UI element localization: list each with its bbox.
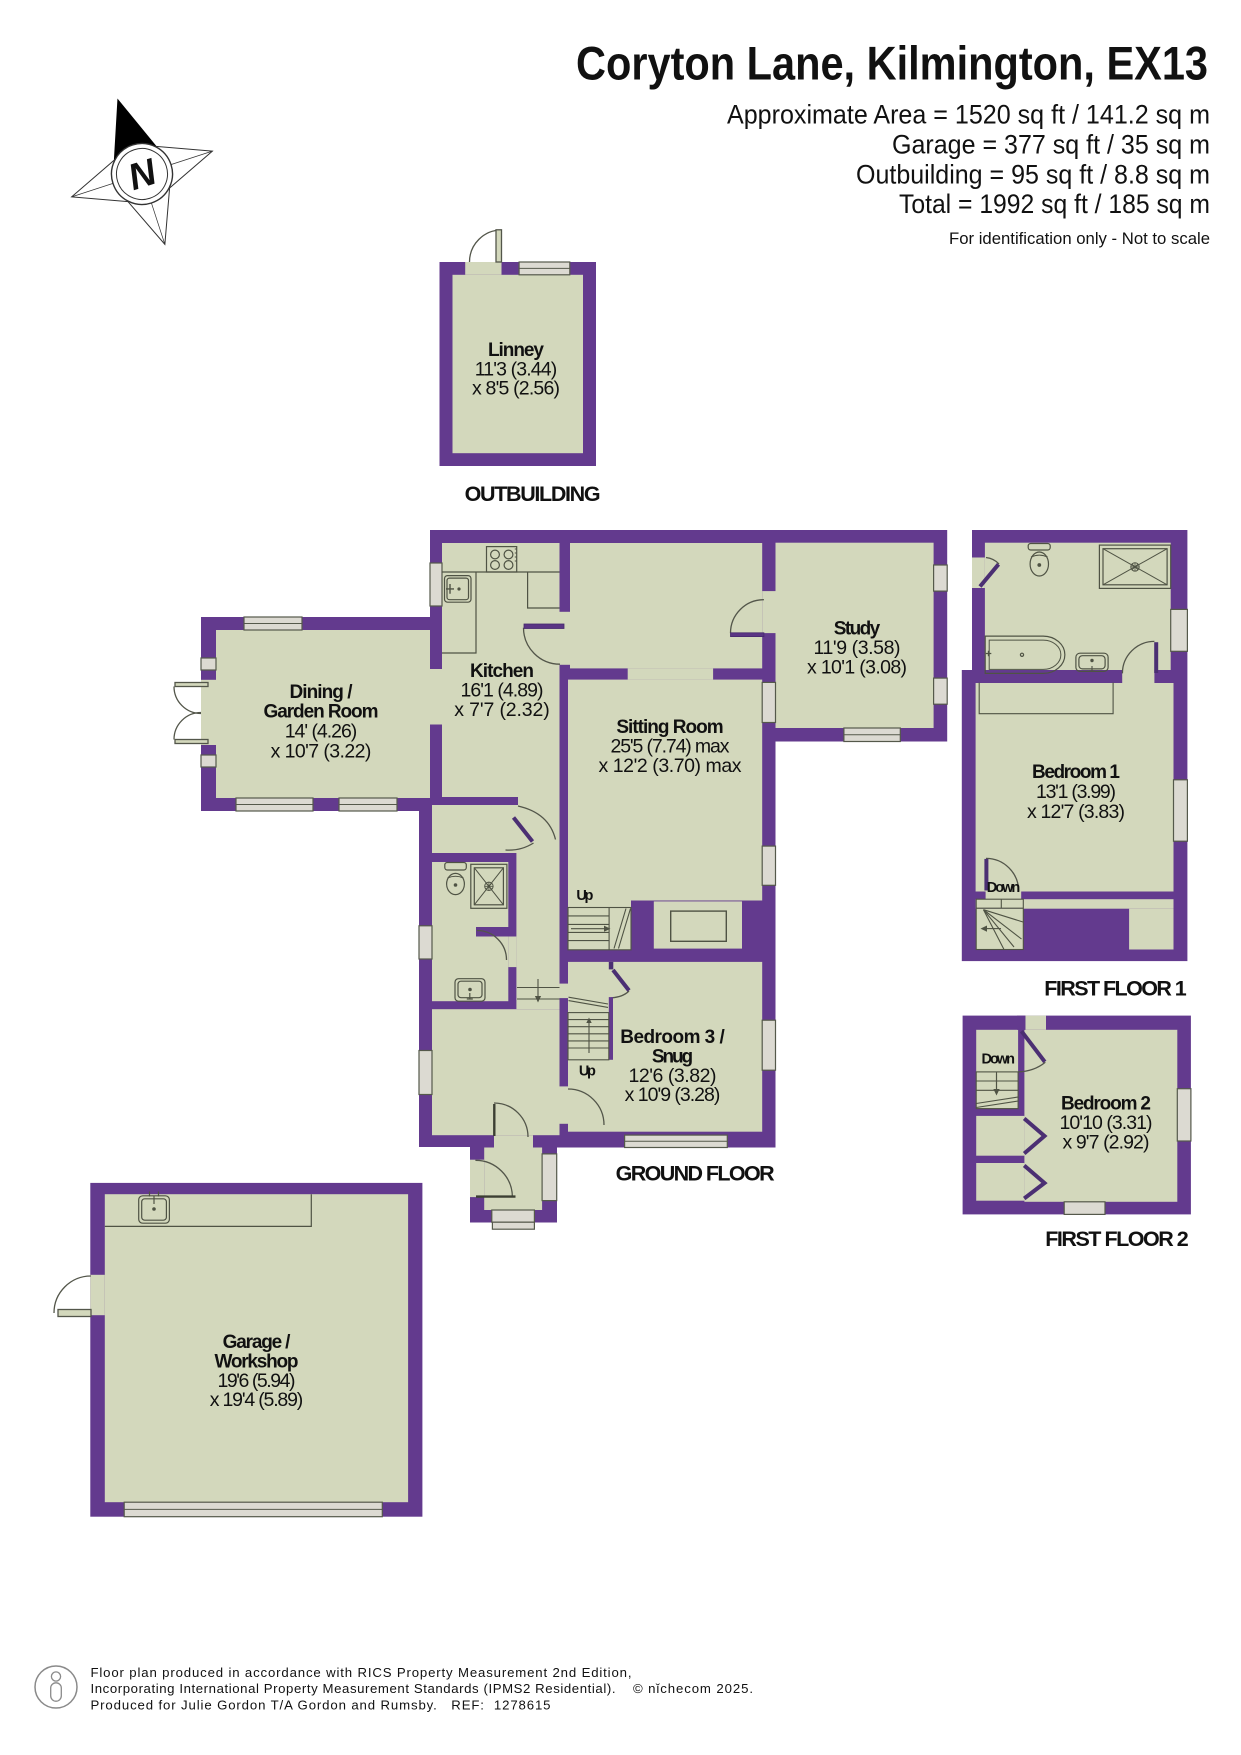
svg-text:x 7'7 (2.32): x 7'7 (2.32)	[454, 699, 549, 721]
svg-text:Down: Down	[987, 880, 1021, 896]
svg-text:OUTBUILDING: OUTBUILDING	[465, 482, 601, 506]
svg-text:Garage = 377 sq ft / 35 sq m: Garage = 377 sq ft / 35 sq m	[892, 130, 1210, 160]
svg-text:x 10'1 (3.08): x 10'1 (3.08)	[807, 656, 907, 678]
svg-text:Approximate Area = 1520 sq ft: Approximate Area = 1520 sq ft / 141.2 sq…	[727, 100, 1210, 130]
svg-text:FIRST FLOOR 2: FIRST FLOOR 2	[1045, 1227, 1189, 1251]
svg-text:Coryton Lane, Kilmington, EX13: Coryton Lane, Kilmington, EX13	[576, 38, 1208, 91]
svg-text:x 9'7 (2.92): x 9'7 (2.92)	[1063, 1132, 1150, 1154]
svg-text:Floor plan produced in accorda: Floor plan produced in accordance with R…	[91, 1665, 632, 1680]
svg-text:Produced for Julie Gordon T/A: Produced for Julie Gordon T/A Gordon and…	[91, 1697, 551, 1712]
svg-text:Bedroom 3 /: Bedroom 3 /	[620, 1027, 725, 1048]
svg-text:Dining /: Dining /	[290, 682, 354, 703]
svg-text:Total = 1992 sq ft / 185 sq m: Total = 1992 sq ft / 185 sq m	[899, 189, 1210, 219]
svg-text:Garden Room: Garden Room	[264, 701, 379, 722]
svg-text:x 19'4 (5.89): x 19'4 (5.89)	[210, 1389, 304, 1411]
svg-text:x 12'7 (3.83): x 12'7 (3.83)	[1027, 801, 1125, 823]
svg-text:x 8'5 (2.56): x 8'5 (2.56)	[472, 378, 560, 400]
svg-text:FIRST FLOOR 1: FIRST FLOOR 1	[1044, 977, 1187, 1001]
svg-text:Incorporating International Pr: Incorporating International Property Mea…	[91, 1681, 616, 1696]
svg-text:x 12'2 (3.70) max: x 12'2 (3.70) max	[599, 755, 742, 777]
svg-text:13'1 (3.99): 13'1 (3.99)	[1036, 781, 1116, 803]
svg-text:14' (4.26): 14' (4.26)	[285, 720, 358, 742]
svg-text:Bedroom 1: Bedroom 1	[1032, 762, 1120, 783]
svg-text:© nǐchecom 2025.: © nǐchecom 2025.	[633, 1681, 753, 1696]
svg-text:x 10'9 (3.28): x 10'9 (3.28)	[625, 1084, 721, 1106]
svg-text:Garage /: Garage /	[223, 1332, 291, 1353]
svg-text:Up: Up	[579, 1064, 596, 1080]
svg-text:x 10'7 (3.22): x 10'7 (3.22)	[271, 740, 372, 762]
svg-text:Down: Down	[981, 1052, 1015, 1068]
svg-text:For identification only - Not: For identification only - Not to scale	[949, 230, 1210, 248]
svg-text:Up: Up	[576, 888, 593, 904]
svg-text:GROUND FLOOR: GROUND FLOOR	[616, 1161, 775, 1185]
svg-text:Outbuilding = 95 sq ft / 8.8 s: Outbuilding = 95 sq ft / 8.8 sq m	[856, 160, 1210, 190]
